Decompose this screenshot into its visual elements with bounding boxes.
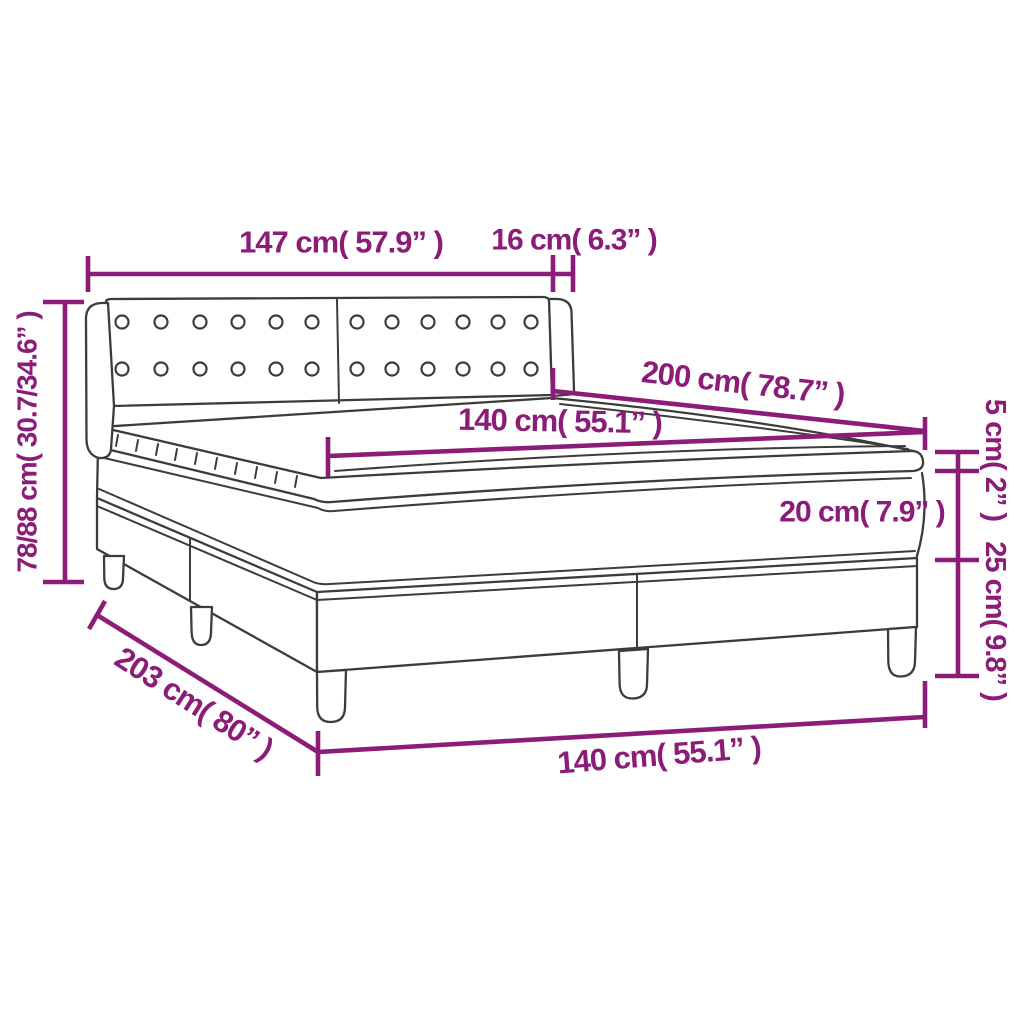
headboard-button [306,316,319,329]
bed-dimension-diagram: 147 cm( 57.9” ) 16 cm( 6.3” ) 78/88 cm( … [0,0,1024,1024]
bed-leg [317,670,346,722]
dim-label-base-height: 25 cm( 9.8” ) [979,541,1011,701]
bed-leg [619,649,648,699]
headboard-button [422,363,435,376]
diagram-svg: 147 cm( 57.9” ) 16 cm( 6.3” ) 78/88 cm( … [0,0,1024,1024]
headboard-button [351,363,364,376]
headboard-button [386,363,399,376]
headboard-button [270,363,283,376]
headboard-button [525,316,538,329]
headboard-button [306,363,319,376]
dim-label-total-height: 78/88 cm( 30.7/34.6” ) [12,311,43,572]
bed-leg [191,607,212,645]
headboard-button [422,316,435,329]
bed-leg [888,627,916,677]
headboard-button [155,363,168,376]
headboard-button [351,316,364,329]
dim-label-mattress-height: 20 cm( 7.9” ) [779,496,944,529]
dim-label-bed-length: 203 cm( 80” ) [109,640,280,766]
headboard-button [155,316,168,329]
dim-bed-width-bottom: 140 cm( 55.1” ) [318,681,925,780]
dim-tick [89,601,105,629]
headboard-button [194,316,207,329]
headboard-left-wing [86,303,114,458]
headboard-button [116,363,129,376]
dim-headboard-width: 147 cm( 57.9” ) 16 cm( 6.3” ) [88,224,657,293]
dim-label-wing-depth: 16 cm( 6.3” ) [491,224,656,257]
headboard-button [386,316,399,329]
headboard-button [194,363,207,376]
dim-total-height: 78/88 cm( 30.7/34.6” ) [12,302,85,582]
headboard-button [457,316,470,329]
headboard-button [232,316,245,329]
headboard-button [457,363,470,376]
dim-label-headboard-width: 147 cm( 57.9” ) [239,225,443,260]
headboard-button [492,316,505,329]
headboard-button [116,316,129,329]
headboard-button [525,363,538,376]
dim-label-topper-height: 5 cm( 2” ) [979,399,1011,521]
bed-leg [104,556,124,589]
base-foot-face [317,558,917,672]
headboard-button [270,316,283,329]
headboard-button [232,363,245,376]
headboard-panel [106,297,552,406]
dim-label-mattress-width-top: 140 cm( 55.1” ) [458,402,662,441]
headboard-button [492,363,505,376]
